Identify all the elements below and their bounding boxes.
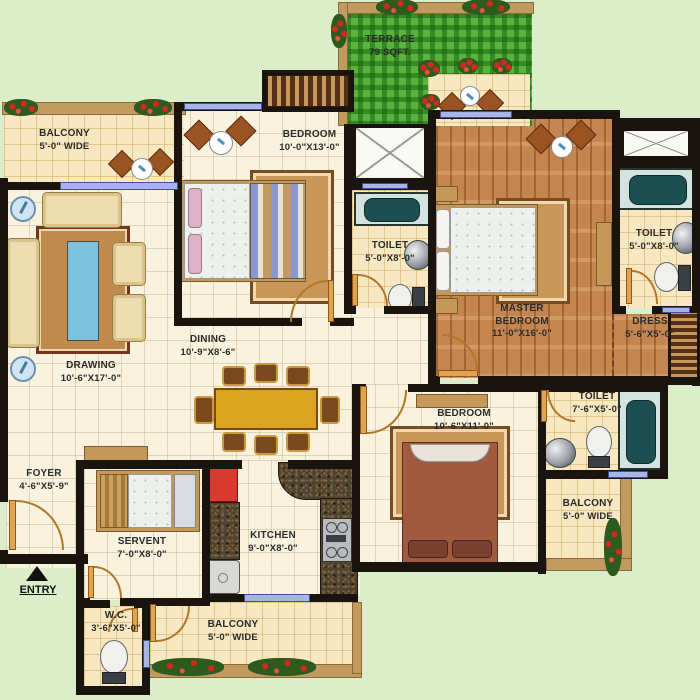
- round-table-icon: [131, 158, 153, 180]
- room-label-master-bedroom: MASTER BEDROOM 11'-0"X16'-0": [470, 303, 574, 340]
- dining-chair: [194, 396, 214, 424]
- room-dim: 5'-6"X5'-0": [606, 329, 694, 341]
- room-dim: 7'-6"X5'-0": [550, 404, 644, 416]
- window: [143, 640, 150, 668]
- room-dim: 4'-6"X5'-9": [0, 481, 88, 493]
- wall: [612, 160, 700, 168]
- room-name: TOILET: [550, 391, 644, 404]
- room-dim: 3'-6"X5'-0": [70, 623, 162, 635]
- dresser: [416, 394, 488, 408]
- room-label-dress: DRESS 5'-6"X5'-0": [606, 316, 694, 340]
- dresser: [596, 222, 612, 286]
- room-label-kitchen: KITCHEN 9'-0"X8'-0": [222, 530, 324, 554]
- wall: [660, 384, 668, 479]
- room-name: FOYER: [0, 468, 88, 481]
- toilet-seat: [100, 640, 128, 674]
- room-name: TOILET: [346, 240, 434, 253]
- wall: [76, 460, 210, 469]
- fan-icon: [10, 196, 36, 222]
- wall: [4, 182, 62, 190]
- wall: [0, 178, 8, 502]
- stove: [322, 518, 352, 562]
- window: [440, 111, 512, 118]
- flower-garland-icon: [331, 14, 347, 48]
- dining-chair: [222, 432, 246, 452]
- room-label-dining: DINING 10'-9"X8'-6": [152, 334, 264, 358]
- dining-chair: [286, 432, 310, 452]
- room-dim: 10'-0"X13'-0": [252, 142, 367, 154]
- flower-garland-icon: [462, 0, 510, 15]
- flower-garland-icon: [248, 658, 316, 676]
- room-name: DINING: [152, 334, 264, 347]
- room-name: DRESS: [606, 316, 694, 329]
- flower-garland-icon: [152, 658, 224, 676]
- room-dim: 5'-0" WIDE: [12, 141, 117, 153]
- door: [438, 370, 478, 377]
- dining-chair: [254, 363, 278, 383]
- room-label-toilet-mid: TOILET 5'-0"X8'-0": [346, 240, 434, 264]
- flower-garland-icon: [376, 0, 418, 15]
- toilet-seat: [586, 426, 612, 458]
- entry-label: ENTRY: [6, 584, 70, 596]
- flower-garland-icon: [4, 99, 38, 116]
- terrace-shrub-icon: [418, 60, 440, 77]
- window: [184, 103, 262, 110]
- wall: [612, 306, 626, 314]
- room-dim: 9'-0"X8'-0": [222, 543, 324, 555]
- sofa-chair: [112, 242, 146, 286]
- room-name: SERVENT: [92, 536, 192, 549]
- bed-blanket: [250, 183, 306, 279]
- toilet-seat: [654, 262, 679, 292]
- round-table-icon: [460, 86, 480, 106]
- room-name: BALCONY: [181, 619, 285, 632]
- toilet-tank: [102, 672, 126, 684]
- wash-basin: [544, 438, 576, 468]
- room-label-servant: SERVENT 7'-0"X8'-0": [92, 536, 192, 560]
- room-label-bedroom-bottom: BEDROOM 10'-6"X11'-0": [408, 408, 520, 432]
- room-name: KITCHEN: [222, 530, 324, 543]
- window: [662, 307, 690, 313]
- room-label-foyer: FOYER 4'-6"X5'-9": [0, 468, 88, 492]
- room-name: TOILET: [612, 228, 696, 241]
- wall: [618, 118, 700, 127]
- terrace-shrub-icon: [420, 94, 440, 110]
- servant-bed-mattress: [128, 474, 172, 528]
- room-name: BALCONY: [542, 498, 634, 511]
- wall: [134, 600, 144, 608]
- wall: [352, 562, 546, 572]
- wall: [84, 600, 110, 608]
- wall: [384, 306, 436, 314]
- window: [60, 182, 178, 190]
- toilet-tank: [588, 456, 610, 468]
- room-dim: 10'-9"X8'-6": [152, 347, 264, 359]
- bathtub: [354, 192, 430, 226]
- wall: [202, 594, 244, 602]
- bed-sheet-fold: [410, 444, 490, 462]
- room-dim: 10'-6"X11'-0": [408, 421, 520, 433]
- dining-chair: [286, 366, 310, 386]
- room-dim: 10'-6"X17'-0": [36, 373, 146, 385]
- window: [244, 594, 310, 602]
- console-table: [84, 446, 148, 461]
- wall: [310, 594, 358, 602]
- entry-door: [9, 500, 16, 550]
- pillow: [174, 474, 196, 528]
- room-dim: 7'-0"X8'-0": [92, 549, 192, 561]
- room-dim: 5'-0" WIDE: [181, 632, 285, 644]
- room-name: BEDROOM: [408, 408, 520, 421]
- window: [608, 471, 648, 478]
- flower-plant-icon: [604, 518, 622, 576]
- entry-arrow-icon: [26, 566, 48, 581]
- room-label-balcony-tl: BALCONY 5'-0" WIDE: [12, 128, 117, 152]
- fan-icon: [10, 356, 36, 382]
- room-label-balcony-br: BALCONY 5'-0" WIDE: [542, 498, 634, 522]
- pillow: [436, 251, 450, 291]
- wall: [288, 460, 358, 469]
- room-dim: 11'-0"X16'-0": [470, 328, 574, 340]
- sofa-chair: [112, 294, 146, 342]
- pillow: [436, 209, 450, 249]
- room-name: DRAWING: [36, 360, 146, 373]
- pillow: [452, 540, 492, 558]
- flower-garland-icon: [134, 99, 172, 116]
- room-dim: 5'-0" WIDE: [542, 511, 634, 523]
- room-dim: 5'-0"X8'-0": [612, 241, 696, 253]
- master-bed-duvet: [450, 207, 536, 293]
- floor-plan: BALCONY 5'-0" WIDE BEDROOM 10'-0"X13'-0"…: [0, 0, 700, 700]
- sofa: [6, 238, 40, 348]
- room-name: BEDROOM: [252, 129, 367, 142]
- window: [362, 183, 408, 189]
- room-label-bedroom-top: BEDROOM 10'-0"X13'-0": [252, 129, 367, 153]
- room-dim: 5'-0"X8'-0": [346, 253, 434, 265]
- bedside-table: [434, 298, 458, 314]
- wall: [174, 318, 302, 326]
- balcony-br-parapet-right: [620, 478, 632, 570]
- room-label-wc: W.C. 3'-6"X5'-0": [70, 610, 162, 634]
- dining-chair: [320, 396, 340, 424]
- kitchen-sink: [206, 560, 240, 594]
- dining-chair: [254, 435, 278, 455]
- round-table-icon: [209, 131, 233, 155]
- wall: [352, 384, 360, 572]
- shaft: [620, 127, 692, 160]
- bedside-table: [434, 186, 458, 202]
- door: [541, 390, 547, 422]
- room-label-toilet-br: TOILET 7'-6"X5'-0": [550, 391, 644, 415]
- room-label-terrace: TERRACE 79 SQFT.: [348, 34, 432, 58]
- sofa: [42, 192, 122, 228]
- wardrobe-niche: [262, 70, 354, 112]
- wall: [202, 460, 242, 469]
- pillow: [188, 188, 202, 228]
- bathtub: [618, 168, 696, 210]
- room-name: MASTER BEDROOM: [483, 303, 561, 328]
- refrigerator: [206, 466, 238, 502]
- wall: [612, 118, 620, 314]
- wall: [0, 554, 88, 564]
- round-table-icon: [551, 136, 573, 158]
- balcony-bottom-parapet-right: [352, 602, 362, 674]
- terrace-shrub-icon: [458, 58, 478, 74]
- door: [328, 280, 334, 322]
- room-name: BALCONY: [12, 128, 117, 141]
- dining-chair: [222, 366, 246, 386]
- room-name: W.C.: [70, 610, 162, 623]
- door: [360, 386, 367, 434]
- room-label-balcony-bottom: BALCONY 5'-0" WIDE: [181, 619, 285, 643]
- servant-bed-headboard: [100, 474, 128, 528]
- wall: [76, 686, 150, 695]
- wall: [202, 460, 210, 602]
- wall: [174, 102, 182, 326]
- room-label-drawing: DRAWING 10'-6"X17'-0": [36, 360, 146, 384]
- terrace-shrub-icon: [492, 58, 512, 74]
- dining-table: [214, 388, 318, 430]
- pillow: [188, 234, 202, 274]
- toilet-tank: [678, 265, 691, 291]
- wall: [344, 306, 356, 314]
- room-name: TERRACE: [348, 34, 432, 47]
- pillow: [408, 540, 448, 558]
- wall: [408, 384, 538, 392]
- room-dim: 79 SQFT.: [348, 47, 432, 59]
- room-label-toilet-right: TOILET 5'-0"X8'-0": [612, 228, 696, 252]
- wall: [538, 470, 668, 479]
